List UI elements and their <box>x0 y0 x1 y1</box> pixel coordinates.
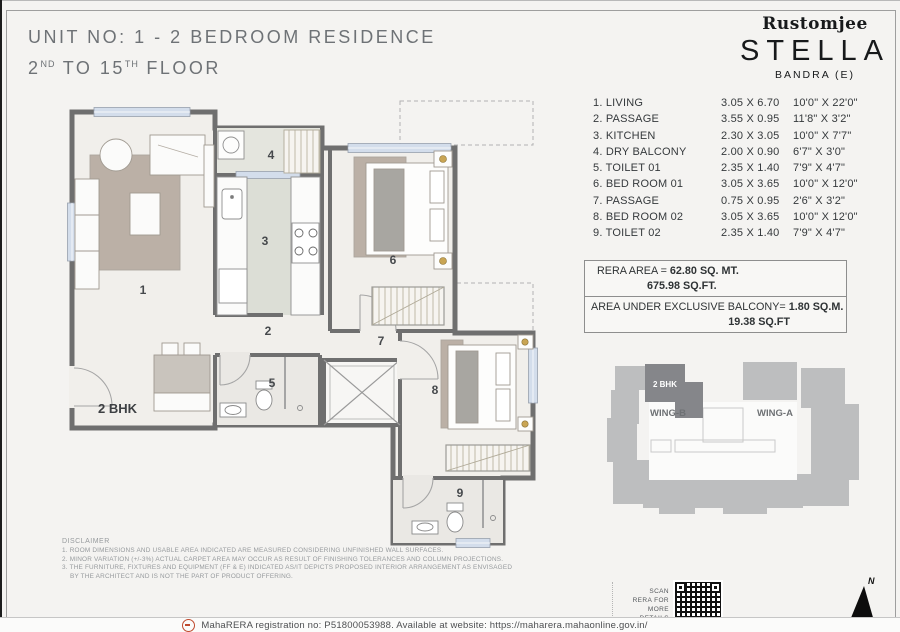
room-label-2: 2 <box>265 324 272 338</box>
room-label-8: 8 <box>432 383 439 397</box>
dining-chair <box>184 343 200 355</box>
lamp <box>440 156 447 163</box>
project-name: STELLA <box>740 35 890 68</box>
wing-a-label: WING-A <box>757 408 793 419</box>
wing-b-label: WING-B <box>650 408 686 419</box>
disclaimer-title: DISCLAIMER <box>62 538 512 545</box>
balcony-area-sqft: 19.38 SQ.FT <box>585 315 846 333</box>
bedroom2-blanket <box>456 351 478 423</box>
room-label: 8. BED ROOM 02 <box>593 209 721 225</box>
room-label: 2. PASSAGE <box>593 111 721 127</box>
north-label: N <box>868 576 875 586</box>
room-label: 5. TOILET 01 <box>593 160 721 176</box>
room-metric: 3.05 X 3.65 <box>721 176 793 192</box>
pillow <box>496 389 510 421</box>
floor-title-line: 2ND TO 15TH FLOOR <box>28 51 436 82</box>
disclaimer-line: 2. MINOR VARIATION (+/-3%) ACTUAL CARPET… <box>62 556 512 565</box>
brochure-page: UNIT NO: 1 - 2 BEDROOM RESIDENCE 2ND TO … <box>0 0 900 632</box>
stove <box>292 223 319 263</box>
page-title: UNIT NO: 1 - 2 BEDROOM RESIDENCE 2ND TO … <box>28 24 436 82</box>
room-label-9: 9 <box>457 486 464 500</box>
floor-plan: 1 2 3 4 5 6 7 8 9 2 BHK <box>58 93 558 563</box>
rera-area-line: RERA AREA = 62.80 SQ. MT. <box>585 261 846 279</box>
room-label-4: 4 <box>268 148 275 162</box>
room-dimensions-table: 1. LIVING3.05 X 6.7010'0" X 22'0" 2. PAS… <box>593 95 858 242</box>
washing-machine <box>218 131 244 159</box>
wc-tank <box>447 503 463 511</box>
room-label-3: 3 <box>262 234 269 248</box>
key-plan: 2 BHK WING-B WING-A <box>603 356 861 516</box>
room-label-5: 5 <box>269 376 276 390</box>
room-imperial: 10'0" X 12'0" <box>793 209 858 225</box>
top-edge-line <box>0 0 900 1</box>
room-label: 7. PASSAGE <box>593 193 721 209</box>
fridge <box>219 269 247 303</box>
room-label: 6. BED ROOM 01 <box>593 176 721 192</box>
balcony-area-line: AREA UNDER EXCLUSIVE BALCONY= 1.80 SQ.M. <box>585 297 846 315</box>
key-plan-unit-label: 2 BHK <box>653 380 677 389</box>
room-imperial: 2'6" X 3'2" <box>793 193 858 209</box>
room-label-7: 7 <box>378 334 385 348</box>
room-imperial: 10'0" X 7'7" <box>793 128 858 144</box>
rera-area-box: RERA AREA = 62.80 SQ. MT. 675.98 SQ.FT. … <box>584 260 847 333</box>
coffee-table <box>130 193 160 235</box>
wc <box>447 512 463 532</box>
footer-bar: MahaRERA registration no: P51800053988. … <box>0 617 900 632</box>
lift-shaft <box>324 360 400 425</box>
room-label-1: 1 <box>140 283 147 297</box>
room-imperial: 10'0" X 22'0" <box>793 95 858 111</box>
room-metric: 3.05 X 6.70 <box>721 95 793 111</box>
maharera-logo-icon <box>182 619 195 632</box>
disclaimer-line: 1. ROOM DIMENSIONS AND USABLE AREA INDIC… <box>62 547 512 556</box>
room-label: 1. LIVING <box>593 95 721 111</box>
room-label: 9. TOILET 02 <box>593 225 721 241</box>
side-table <box>100 139 132 171</box>
pillow <box>496 353 510 385</box>
wc <box>256 390 272 410</box>
room-imperial: 6'7" X 3'0" <box>793 144 858 160</box>
room-label-6: 6 <box>390 253 397 267</box>
room-metric: 3.55 X 0.95 <box>721 111 793 127</box>
unit-title-line: UNIT NO: 1 - 2 BEDROOM RESIDENCE <box>28 24 436 51</box>
armchair <box>150 135 205 175</box>
room-label: 3. KITCHEN <box>593 128 721 144</box>
brand-name: Rustomjee <box>740 14 890 34</box>
lamp <box>440 258 447 265</box>
room-metric: 2.35 X 1.40 <box>721 160 793 176</box>
left-edge-line <box>0 0 2 632</box>
maharera-registration-text: MahaRERA registration no: P51800053988. … <box>201 620 647 631</box>
room-imperial: 7'9" X 4'7" <box>793 225 858 241</box>
room-metric: 0.75 X 0.95 <box>721 193 793 209</box>
disclaimer-line: 3. THE FURNITURE, FIXTURES AND EQUIPMENT… <box>62 564 512 573</box>
room-metric: 2.30 X 3.05 <box>721 128 793 144</box>
dining-table <box>154 355 210 393</box>
dining-bench <box>154 393 210 411</box>
pillow <box>430 209 444 241</box>
disclaimer-block: DISCLAIMER 1. ROOM DIMENSIONS AND USABLE… <box>62 538 512 581</box>
rera-area-sqft: 675.98 SQ.FT. <box>585 279 846 297</box>
tv-console <box>204 145 214 207</box>
room-metric: 2.35 X 1.40 <box>721 225 793 241</box>
lamp <box>522 339 528 345</box>
room-imperial: 11'8" X 3'2" <box>793 111 858 127</box>
room-metric: 3.05 X 3.65 <box>721 209 793 225</box>
room-imperial: 7'9" X 4'7" <box>793 160 858 176</box>
room-imperial: 10'0" X 12'0" <box>793 176 858 192</box>
room-metric: 2.00 X 0.90 <box>721 144 793 160</box>
disclaimer-line: BY THE ARCHITECT AND IS NOT THE PART OF … <box>62 573 512 582</box>
unit-type-label: 2 BHK <box>98 401 138 416</box>
pillow <box>430 171 444 203</box>
developer-logo: Rustomjee STELLA BANDRA (E) <box>740 14 890 81</box>
dining-chair <box>162 343 178 355</box>
duct-hatch <box>284 130 320 173</box>
sofa <box>75 179 99 289</box>
project-location: BANDRA (E) <box>740 69 890 81</box>
bedroom1-blanket <box>374 169 404 251</box>
lamp <box>522 421 528 427</box>
kitchen-sink <box>222 189 242 219</box>
room-label: 4. DRY BALCONY <box>593 144 721 160</box>
